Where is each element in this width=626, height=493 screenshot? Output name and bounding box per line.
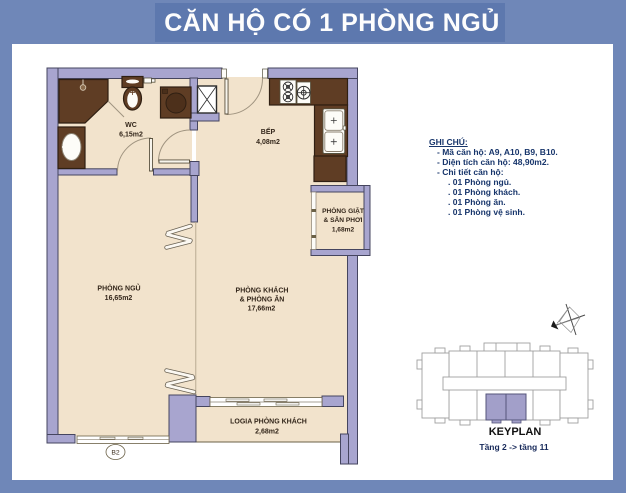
svg-text:PHÒNG GIẶT: PHÒNG GIẶT bbox=[322, 206, 364, 215]
svg-text:17,66m2: 17,66m2 bbox=[248, 306, 276, 313]
svg-text:16,65m2: 16,65m2 bbox=[105, 295, 133, 302]
svg-text:LOGIA PHÒNG KHÁCH: LOGIA PHÒNG KHÁCH bbox=[230, 417, 307, 426]
svg-text:6,15m2: 6,15m2 bbox=[119, 132, 143, 139]
svg-text:PHÒNG KHÁCH: PHÒNG KHÁCH bbox=[236, 286, 289, 295]
svg-text:& PHÒNG ĂN: & PHÒNG ĂN bbox=[240, 295, 285, 304]
svg-text:4,08m2: 4,08m2 bbox=[256, 139, 280, 146]
svg-text:1,68m2: 1,68m2 bbox=[332, 227, 355, 234]
svg-text:B2: B2 bbox=[111, 450, 120, 457]
svg-text:WC: WC bbox=[125, 122, 137, 129]
svg-text:& SÂN PHƠI: & SÂN PHƠI bbox=[324, 215, 363, 224]
svg-text:PHÒNG NGỦ: PHÒNG NGỦ bbox=[97, 284, 140, 293]
svg-text:2,68m2: 2,68m2 bbox=[255, 429, 279, 436]
